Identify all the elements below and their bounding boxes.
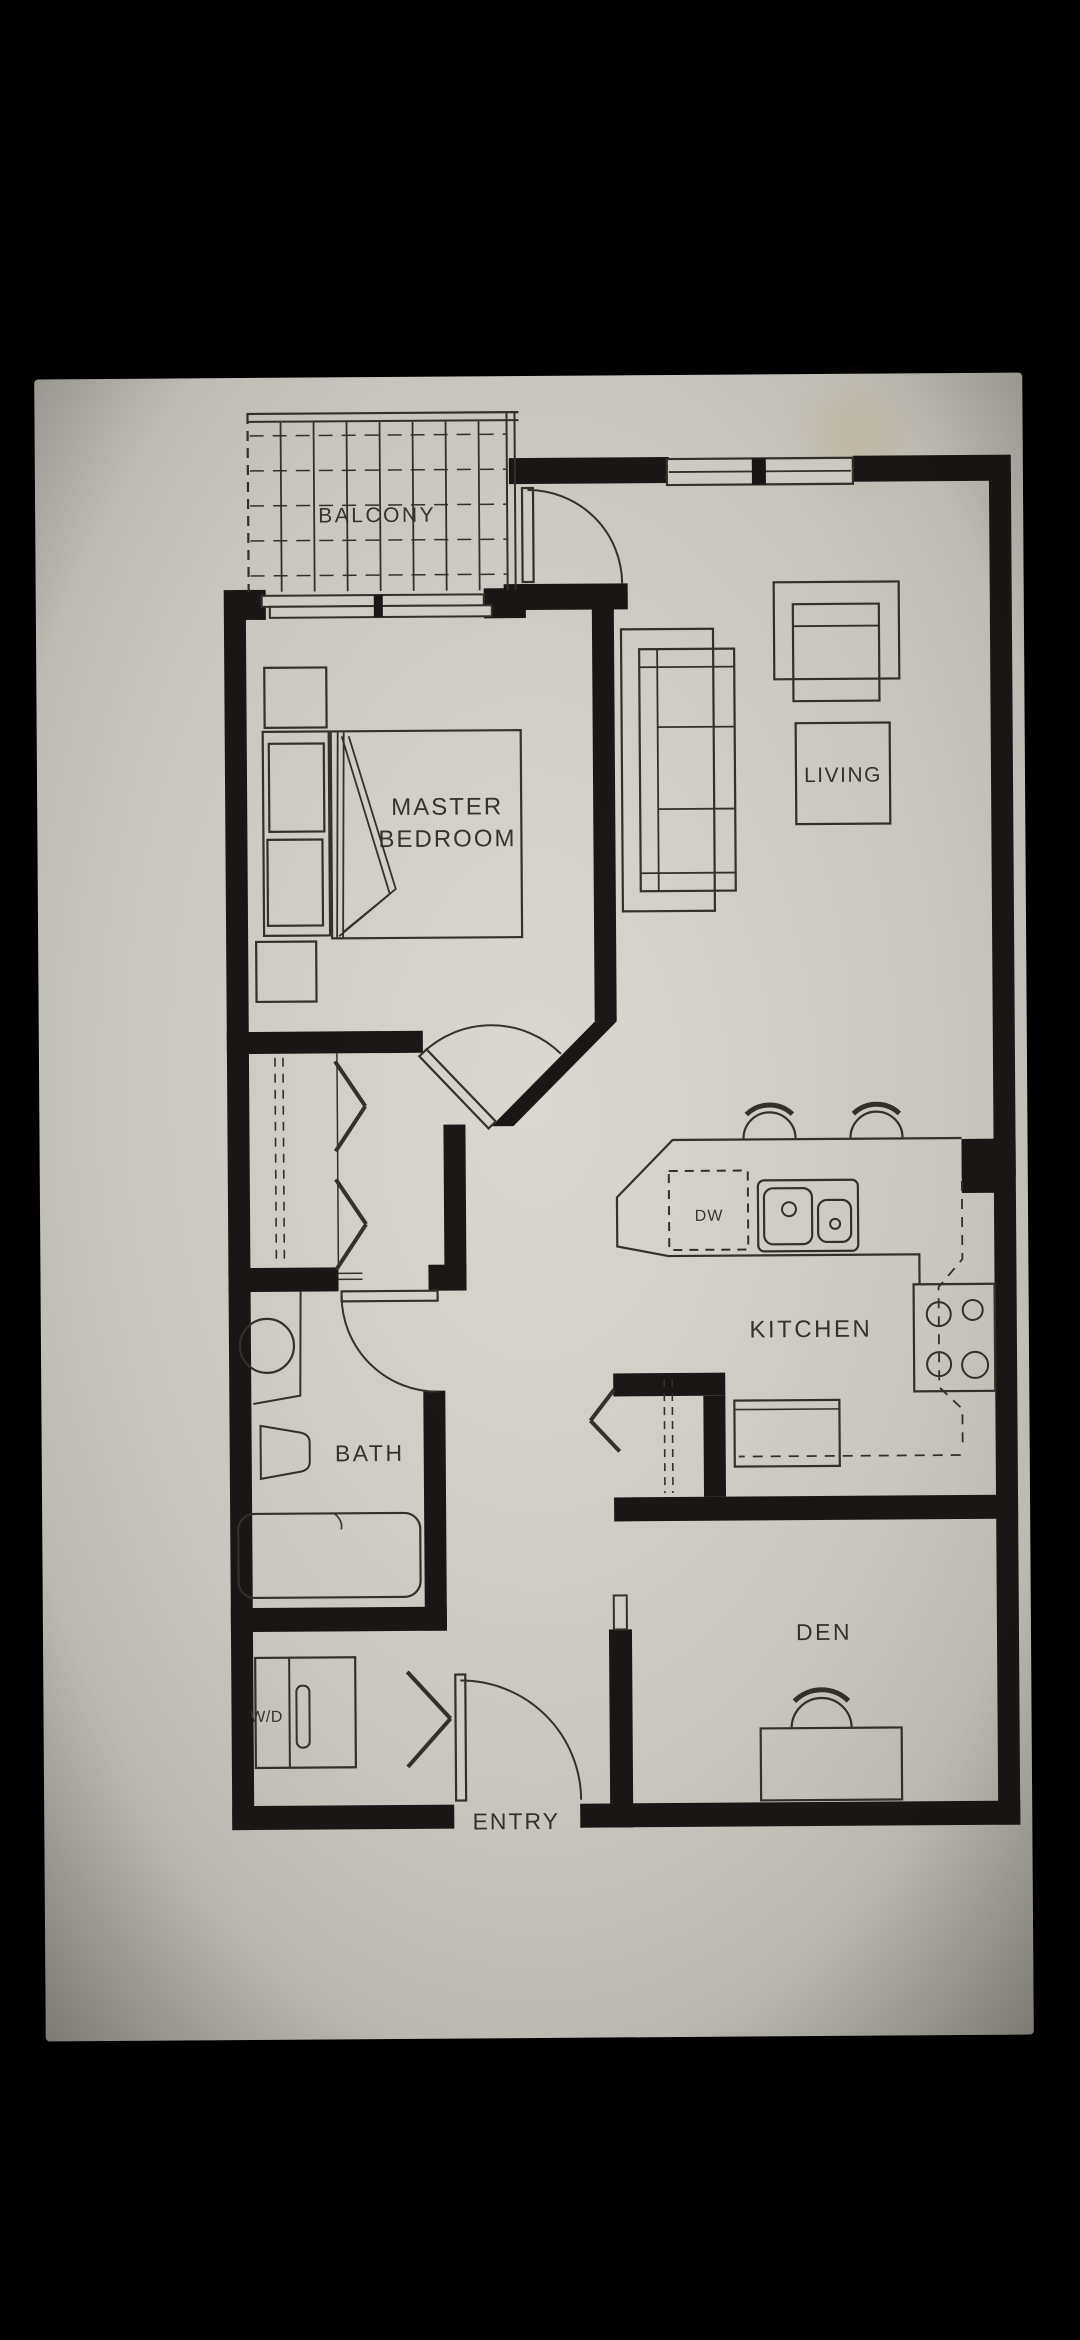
phone-screenshot: BALCONY (0, 0, 1080, 2340)
floor-plan-photo: BALCONY (0, 0, 1080, 2340)
paper-photo-group: BALCONY (34, 373, 1034, 2042)
photo-vignette (34, 373, 1034, 2042)
